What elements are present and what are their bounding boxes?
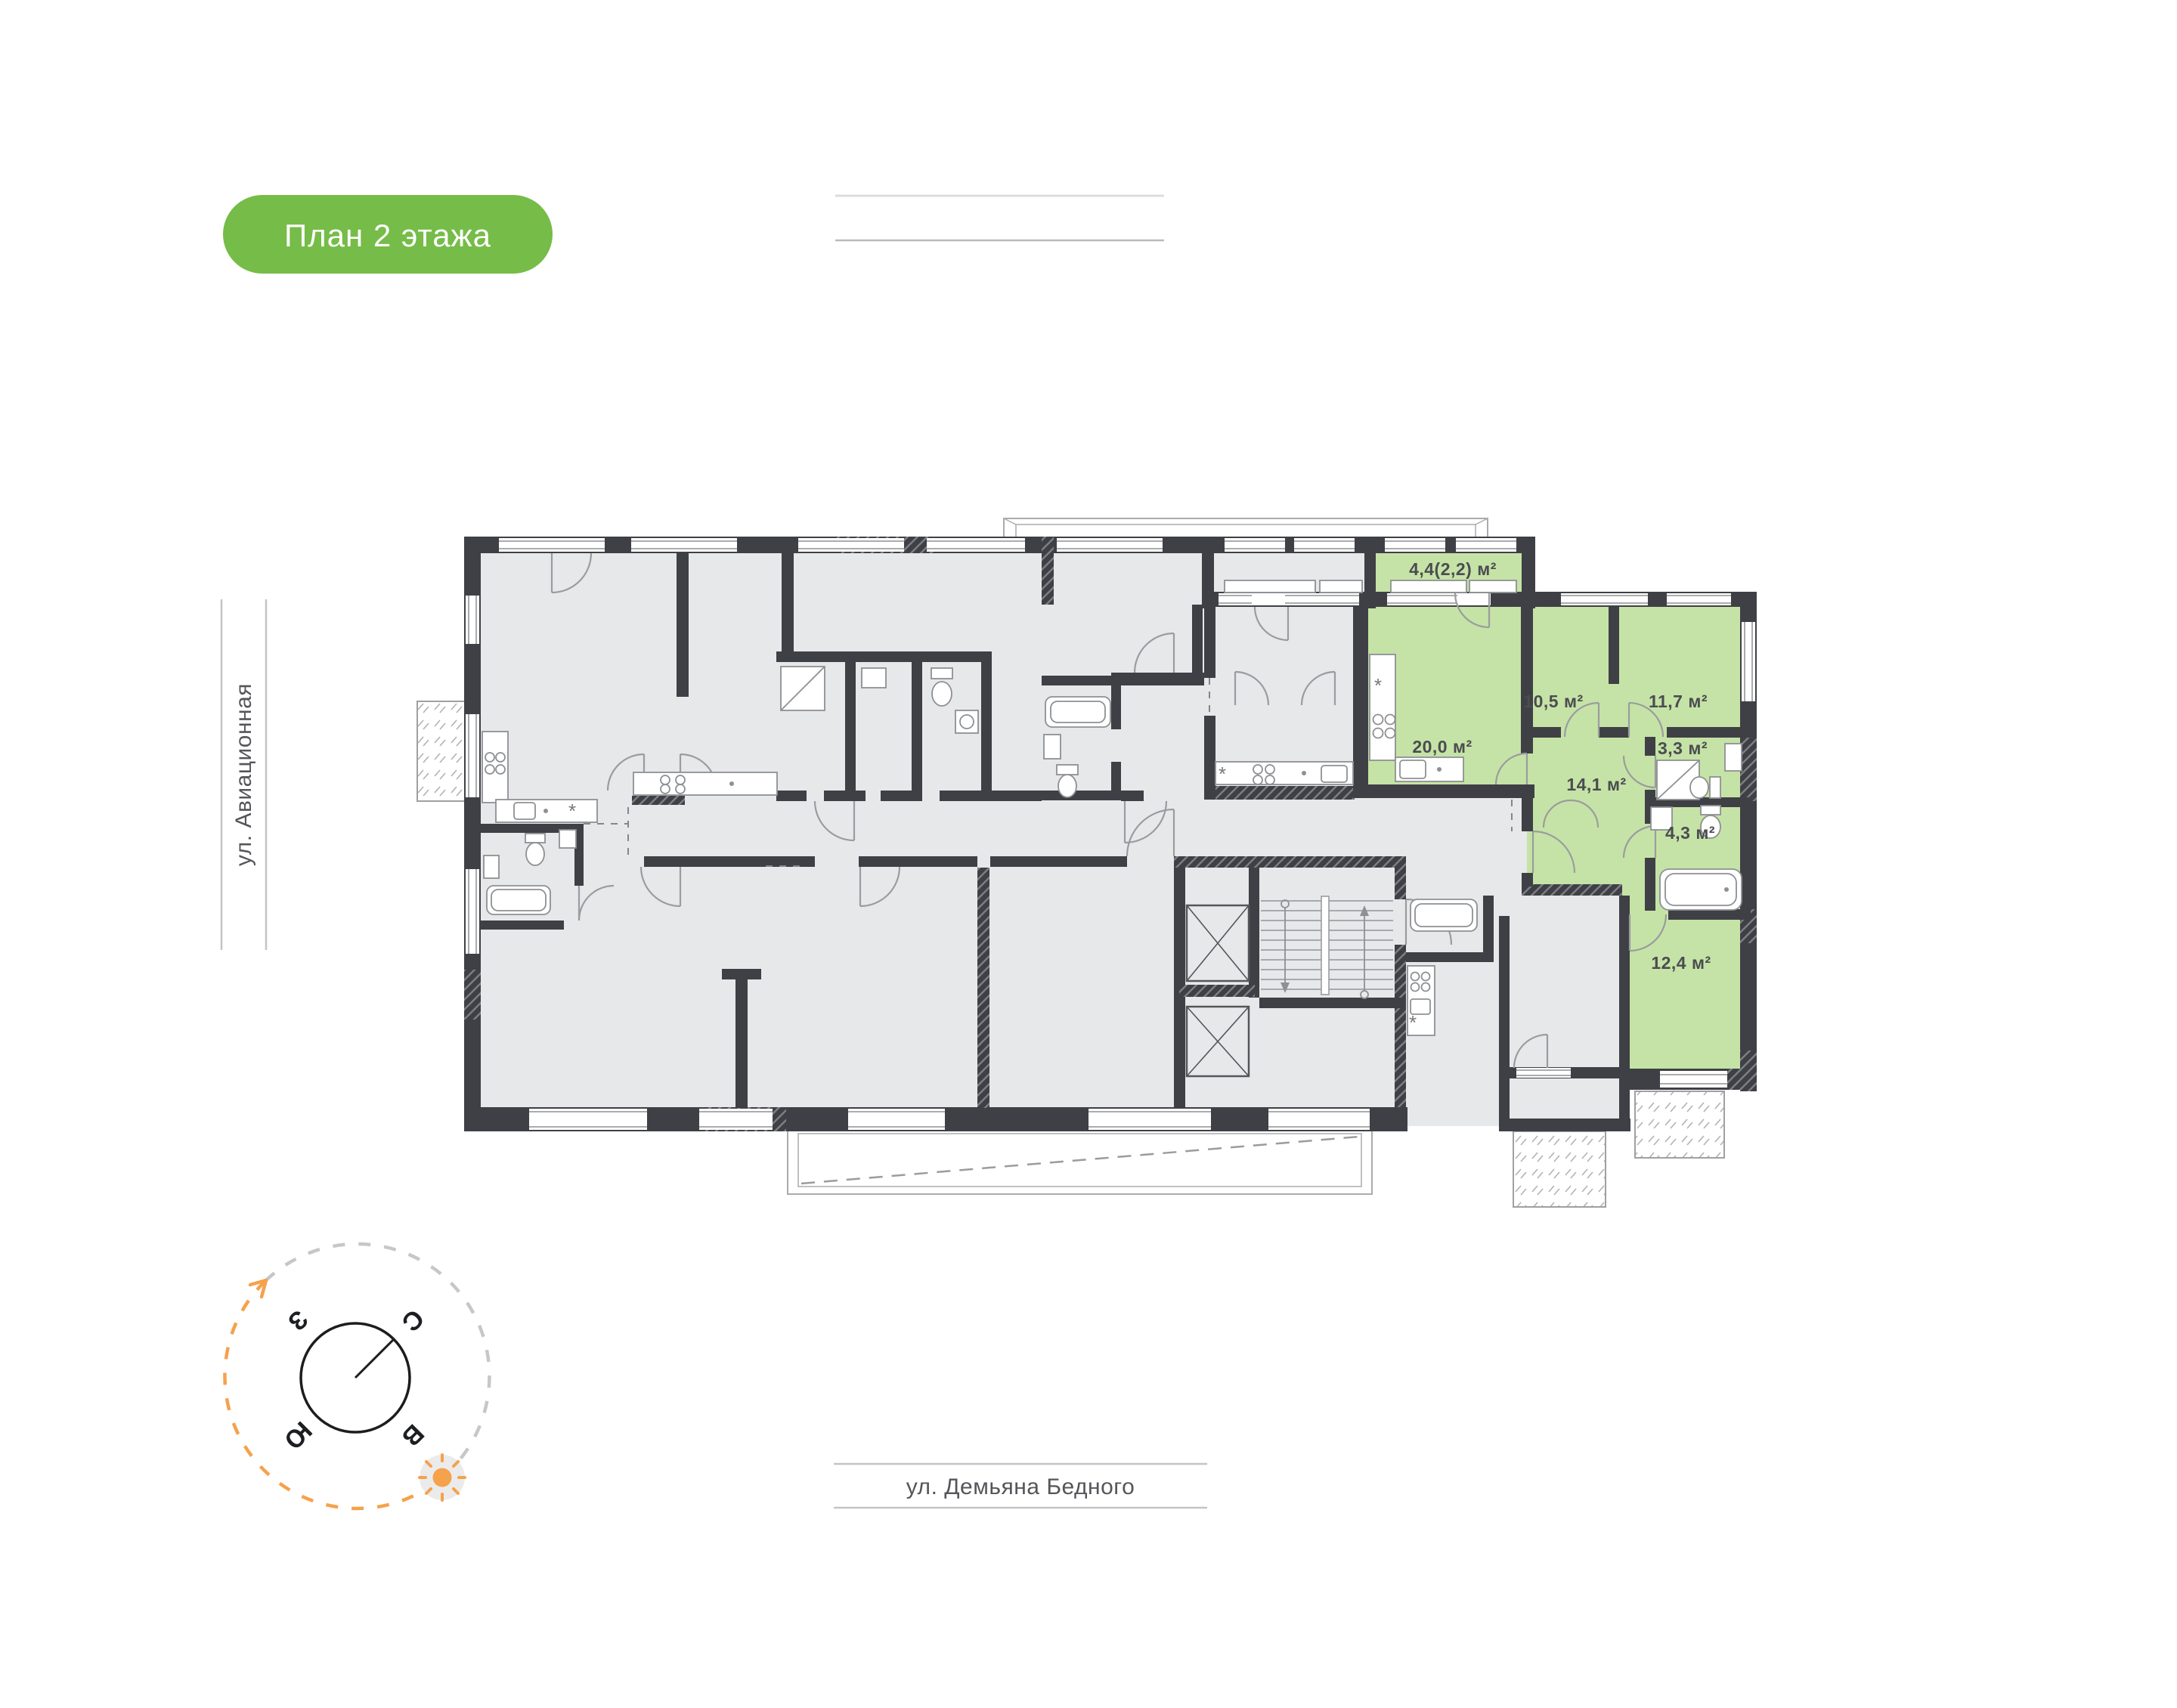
area-label-room: 12,4 м² (1651, 953, 1711, 973)
fridge-icon: * (568, 800, 576, 822)
area-label-kitchen: 20,0 м² (1412, 737, 1472, 757)
area-label-bath2: 4,3 м² (1665, 823, 1715, 843)
area-label-bath1: 3,3 м² (1658, 738, 1708, 758)
balcony-bottom-gray (1513, 1131, 1606, 1207)
compass-letter-west: З (282, 1304, 314, 1336)
street-name-bottom: ул. Демьяна Бедного (906, 1474, 1135, 1499)
area-label-balcony: 4,4(2,2) м² (1409, 559, 1497, 579)
top-balcony-outline (1004, 518, 1488, 539)
fridge-icon: * (1219, 763, 1226, 785)
floor-plan-canvas: План 2 этажа ул. Авиационная ул. Демьяна… (0, 0, 2177, 1708)
compass-letter-east: В (396, 1419, 429, 1452)
fridge-icon: * (1409, 1011, 1417, 1034)
room-12-4 (1622, 921, 1748, 1072)
area-label-bedroom1: 10,5 м² (1523, 692, 1583, 711)
sun-icon (420, 1455, 465, 1500)
area-label-bedroom2: 11,7 м² (1649, 692, 1708, 711)
street-label-left: ул. Авиационная (221, 599, 266, 950)
fridge-icon: * (1374, 674, 1382, 697)
floor-badge-label: План 2 этажа (284, 218, 491, 253)
kitchen-counter-icon-3: * (1215, 762, 1353, 785)
entrance-terrace (788, 1126, 1372, 1194)
area-label-hall: 14,1 м² (1566, 775, 1626, 794)
street-name-left: ул. Авиационная (231, 683, 256, 866)
compass-letter-north: С (396, 1304, 429, 1337)
page: План 2 этажа ул. Авиационная ул. Демьяна… (0, 0, 2177, 1708)
street-label-bottom: ул. Демьяна Бедного (834, 1464, 1207, 1508)
balcony-bottom-green (1635, 1091, 1724, 1158)
balcony-left (417, 701, 467, 801)
floor-plan: * (417, 518, 1757, 1207)
street-band-top (835, 196, 1164, 240)
compass: С В Ю З (225, 1244, 489, 1508)
floor-badge: План 2 этажа (223, 195, 553, 274)
kitchen-counter-icon-2 (633, 772, 777, 795)
compass-letter-south: Ю (278, 1416, 317, 1455)
